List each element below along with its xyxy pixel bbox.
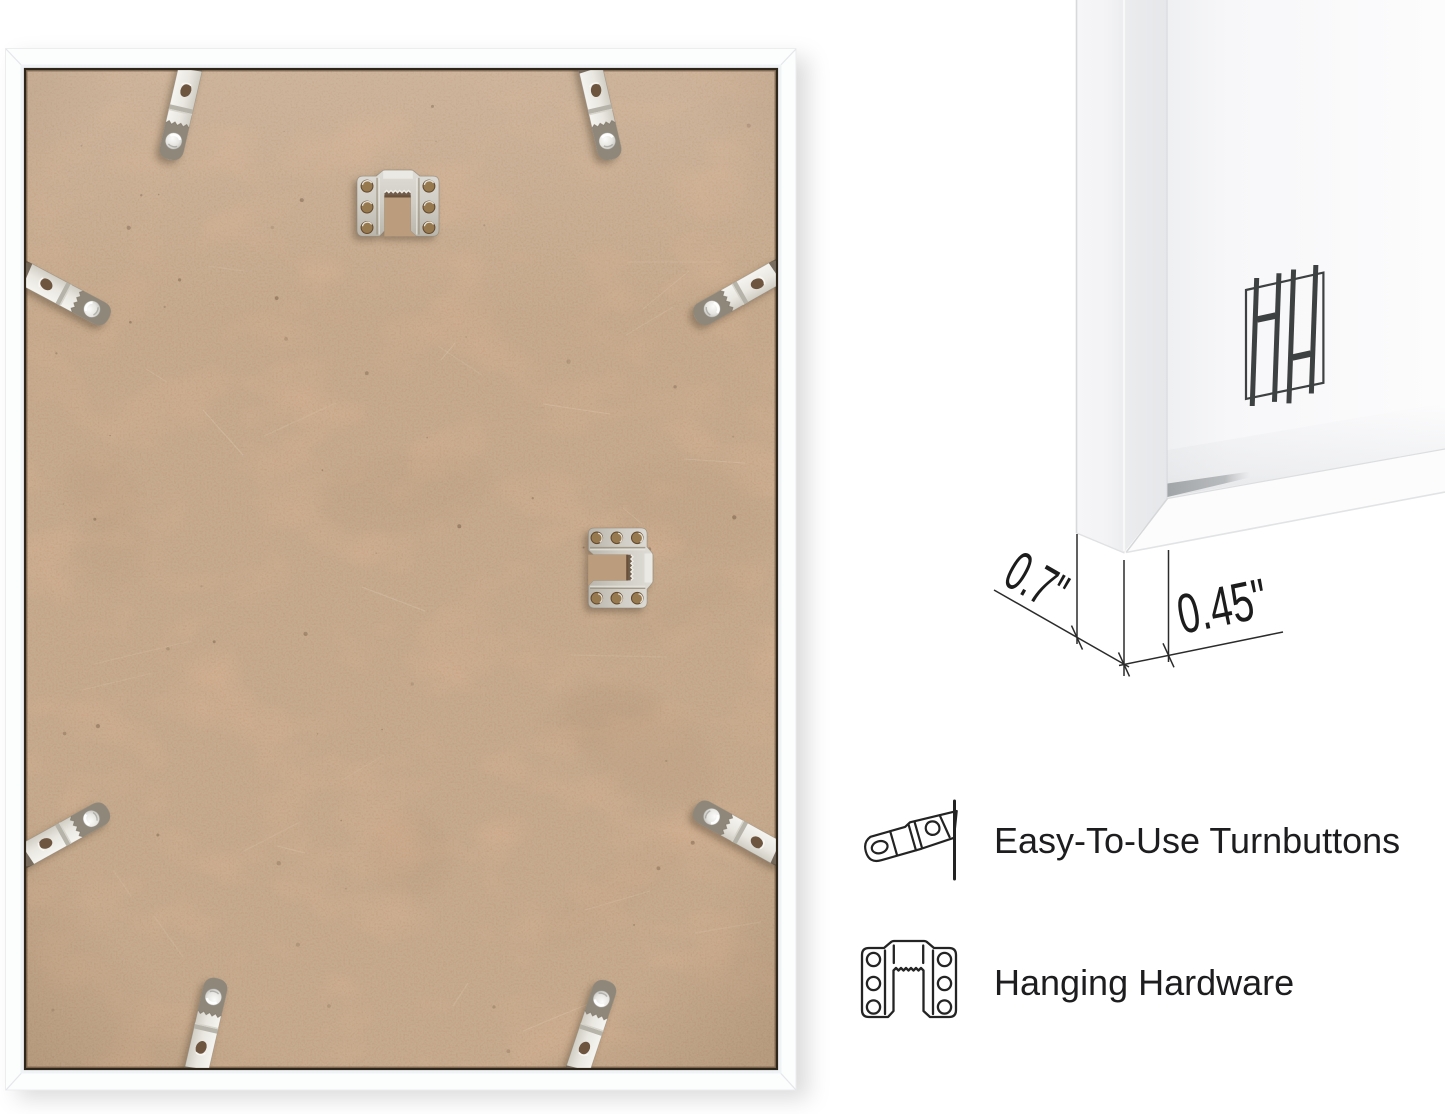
svg-text:Easy-To-Use Turnbuttons: Easy-To-Use Turnbuttons [994, 820, 1400, 861]
svg-text:Hanging Hardware: Hanging Hardware [994, 962, 1294, 1003]
svg-text:0.45": 0.45" [1172, 567, 1273, 646]
svg-text:0.7": 0.7" [995, 539, 1079, 623]
